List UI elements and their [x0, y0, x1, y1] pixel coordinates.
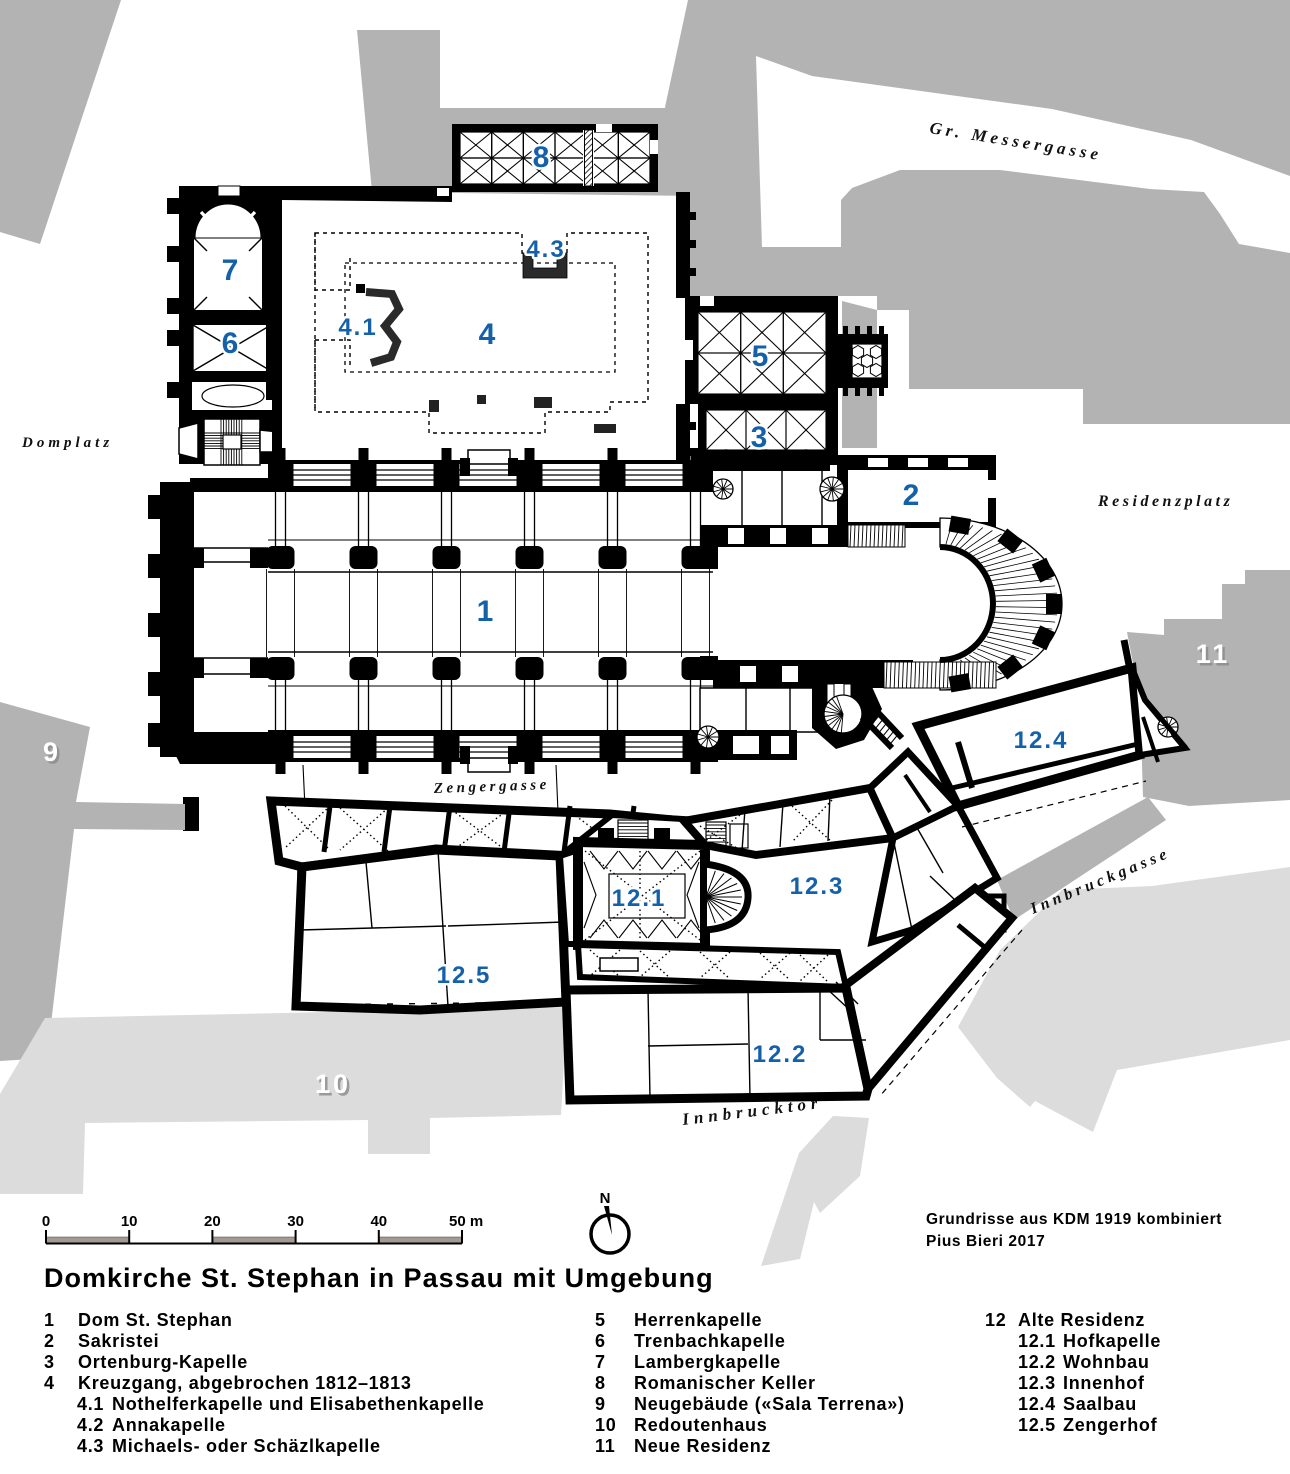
svg-text:Zengerhof: Zengerhof — [1063, 1415, 1158, 1435]
svg-text:7: 7 — [222, 254, 241, 287]
svg-text:12.3: 12.3 — [1018, 1373, 1056, 1393]
svg-text:12.2: 12.2 — [1018, 1352, 1056, 1372]
svg-text:50 m: 50 m — [449, 1213, 483, 1230]
svg-text:9: 9 — [595, 1394, 606, 1414]
svg-text:Neugebäude («Sala Terrena»): Neugebäude («Sala Terrena») — [634, 1394, 905, 1414]
svg-text:0: 0 — [42, 1213, 50, 1230]
svg-text:4: 4 — [44, 1373, 55, 1393]
svg-text:Herrenkapelle: Herrenkapelle — [634, 1310, 762, 1330]
svg-text:Neue Residenz: Neue Residenz — [634, 1436, 771, 1456]
svg-text:10: 10 — [121, 1213, 138, 1230]
svg-text:20: 20 — [204, 1213, 221, 1230]
svg-text:12.4: 12.4 — [1018, 1394, 1056, 1414]
svg-text:2: 2 — [44, 1331, 55, 1351]
svg-text:12.1: 12.1 — [1018, 1331, 1056, 1351]
svg-text:8: 8 — [533, 141, 552, 174]
svg-text:12.5: 12.5 — [437, 962, 492, 989]
svg-text:Hofkapelle: Hofkapelle — [1063, 1331, 1161, 1351]
svg-text:2: 2 — [903, 479, 922, 512]
svg-text:11: 11 — [595, 1436, 615, 1456]
svg-text:Wohnbau: Wohnbau — [1063, 1352, 1150, 1372]
svg-text:3: 3 — [44, 1352, 55, 1372]
svg-text:Ortenburg-Kapelle: Ortenburg-Kapelle — [78, 1352, 248, 1372]
svg-text:Residenzplatz: Residenzplatz — [1097, 493, 1233, 510]
svg-text:1: 1 — [44, 1310, 55, 1330]
svg-text:Kreuzgang, abgebrochen 1812–18: Kreuzgang, abgebrochen 1812–1813 — [78, 1373, 412, 1393]
svg-text:4.3: 4.3 — [77, 1436, 104, 1456]
svg-text:5: 5 — [595, 1310, 606, 1330]
svg-text:N: N — [600, 1190, 611, 1207]
svg-text:8: 8 — [595, 1373, 606, 1393]
svg-text:4.3: 4.3 — [526, 236, 565, 263]
svg-text:Annakapelle: Annakapelle — [112, 1415, 226, 1435]
svg-text:11: 11 — [1196, 639, 1231, 669]
svg-text:4.2: 4.2 — [77, 1415, 104, 1435]
svg-text:Alte Residenz: Alte Residenz — [1018, 1310, 1145, 1330]
svg-text:Grundrisse aus KDM 1919 kombin: Grundrisse aus KDM 1919 kombiniert — [926, 1211, 1222, 1228]
svg-text:10: 10 — [315, 1069, 351, 1099]
svg-text:Domplatz: Domplatz — [21, 435, 113, 451]
svg-text:Innenhof: Innenhof — [1063, 1373, 1145, 1393]
svg-text:4: 4 — [479, 318, 498, 351]
svg-text:3: 3 — [751, 421, 770, 454]
svg-text:Redoutenhaus: Redoutenhaus — [634, 1415, 767, 1435]
svg-text:4.1: 4.1 — [77, 1394, 104, 1414]
svg-text:Michaels- oder Schäzlkapelle: Michaels- oder Schäzlkapelle — [112, 1436, 381, 1456]
svg-text:Dom St. Stephan: Dom St. Stephan — [78, 1310, 233, 1330]
svg-text:9: 9 — [43, 737, 61, 767]
svg-text:30: 30 — [287, 1213, 304, 1230]
svg-text:Lambergkapelle: Lambergkapelle — [634, 1352, 781, 1372]
svg-text:Nothelferkapelle und Elisabeth: Nothelferkapelle und Elisabethenkapelle — [112, 1394, 484, 1414]
svg-text:12.4: 12.4 — [1014, 727, 1069, 754]
svg-text:Sakristei: Sakristei — [78, 1331, 159, 1351]
svg-text:Romanischer Keller: Romanischer Keller — [634, 1373, 816, 1393]
svg-text:Pius Bieri 2017: Pius Bieri 2017 — [926, 1233, 1045, 1250]
svg-text:12.5: 12.5 — [1018, 1415, 1056, 1435]
svg-text:12: 12 — [985, 1310, 1006, 1330]
svg-text:6: 6 — [222, 327, 241, 360]
svg-text:4.1: 4.1 — [338, 314, 377, 341]
svg-text:40: 40 — [370, 1213, 387, 1230]
svg-text:Trenbachkapelle: Trenbachkapelle — [634, 1331, 786, 1351]
svg-text:Saalbau: Saalbau — [1063, 1394, 1137, 1414]
svg-text:6: 6 — [595, 1331, 606, 1351]
svg-text:7: 7 — [595, 1352, 606, 1372]
svg-text:5: 5 — [752, 340, 771, 373]
svg-text:12.1: 12.1 — [612, 885, 667, 912]
svg-text:12.3: 12.3 — [790, 873, 845, 900]
svg-text:12.2: 12.2 — [753, 1041, 808, 1068]
svg-text:Domkirche St. Stephan in Passa: Domkirche St. Stephan in Passau mit Umge… — [44, 1263, 714, 1293]
svg-text:10: 10 — [595, 1415, 616, 1435]
svg-text:1: 1 — [477, 595, 496, 628]
